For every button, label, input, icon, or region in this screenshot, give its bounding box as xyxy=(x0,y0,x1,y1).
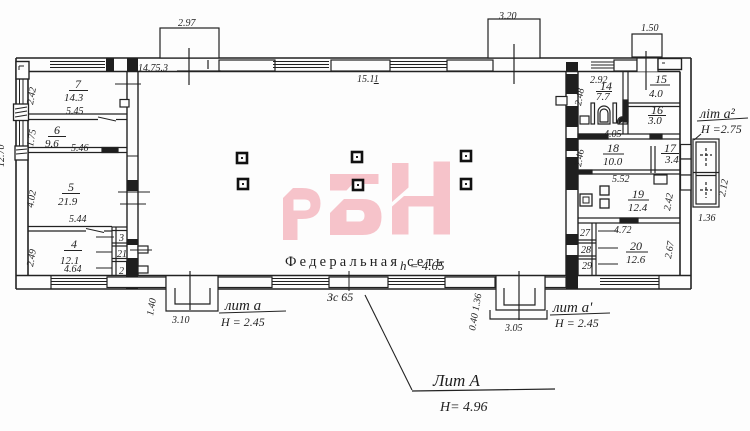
svg-text:15: 15 xyxy=(655,72,667,86)
svg-text:6: 6 xyxy=(54,123,60,137)
svg-text:5.52: 5.52 xyxy=(612,174,630,185)
svg-text:1.36: 1.36 xyxy=(698,213,716,224)
svg-text:3.10: 3.10 xyxy=(171,315,190,326)
svg-text:4: 4 xyxy=(71,237,77,251)
svg-text:h = 4.65: h = 4.65 xyxy=(400,258,445,273)
svg-text:12.6: 12.6 xyxy=(626,254,646,266)
svg-text:7: 7 xyxy=(75,77,82,91)
svg-text:10.0: 10.0 xyxy=(603,156,623,168)
svg-text:21: 21 xyxy=(117,249,127,260)
svg-text:4.0: 4.0 xyxy=(649,88,663,100)
svg-text:17: 17 xyxy=(664,141,677,155)
svg-text:2.97: 2.97 xyxy=(178,18,197,29)
svg-text:7.7: 7.7 xyxy=(596,91,610,103)
svg-text:Н= 4.96: Н= 4.96 xyxy=(439,400,488,415)
svg-text:3.05: 3.05 xyxy=(504,323,523,334)
svg-text:27: 27 xyxy=(580,228,591,239)
svg-text:12.70: 12.70 xyxy=(0,145,7,168)
svg-text:Н = 2.45: Н = 2.45 xyxy=(220,315,265,329)
svg-text:3.0: 3.0 xyxy=(647,115,662,127)
svg-text:4.05: 4.05 xyxy=(604,129,622,140)
svg-text:Лит А: Лит А xyxy=(432,371,481,390)
svg-text:5.44: 5.44 xyxy=(69,214,87,225)
svg-text:19: 19 xyxy=(632,187,644,201)
svg-text:4.64: 4.64 xyxy=(64,264,82,275)
svg-text:12.4: 12.4 xyxy=(628,202,648,214)
svg-text:Зс 65: Зс 65 xyxy=(327,290,353,304)
svg-text:5.45: 5.45 xyxy=(66,106,84,117)
svg-text:14.75.3: 14.75.3 xyxy=(138,63,168,74)
svg-text:3: 3 xyxy=(118,233,124,244)
svg-text:21.9: 21.9 xyxy=(58,196,78,208)
svg-text:3.4: 3.4 xyxy=(664,154,679,166)
svg-text:29: 29 xyxy=(582,261,592,272)
svg-text:14.3: 14.3 xyxy=(64,92,84,104)
svg-text:5: 5 xyxy=(68,180,74,194)
svg-text:Н =2.75: Н =2.75 xyxy=(700,122,742,136)
svg-text:18: 18 xyxy=(607,141,619,155)
svg-text:20: 20 xyxy=(630,239,642,253)
svg-text:3.20: 3.20 xyxy=(498,11,517,22)
svg-text:4.72: 4.72 xyxy=(614,225,632,236)
svg-text:1.50: 1.50 xyxy=(641,23,659,34)
svg-text:5.46: 5.46 xyxy=(71,143,89,154)
svg-text:28: 28 xyxy=(581,245,591,256)
svg-text:9.6: 9.6 xyxy=(45,138,59,150)
svg-text:2: 2 xyxy=(119,266,124,277)
svg-text:Н = 2.45: Н = 2.45 xyxy=(554,316,599,330)
svg-text:15.11: 15.11 xyxy=(357,74,379,85)
